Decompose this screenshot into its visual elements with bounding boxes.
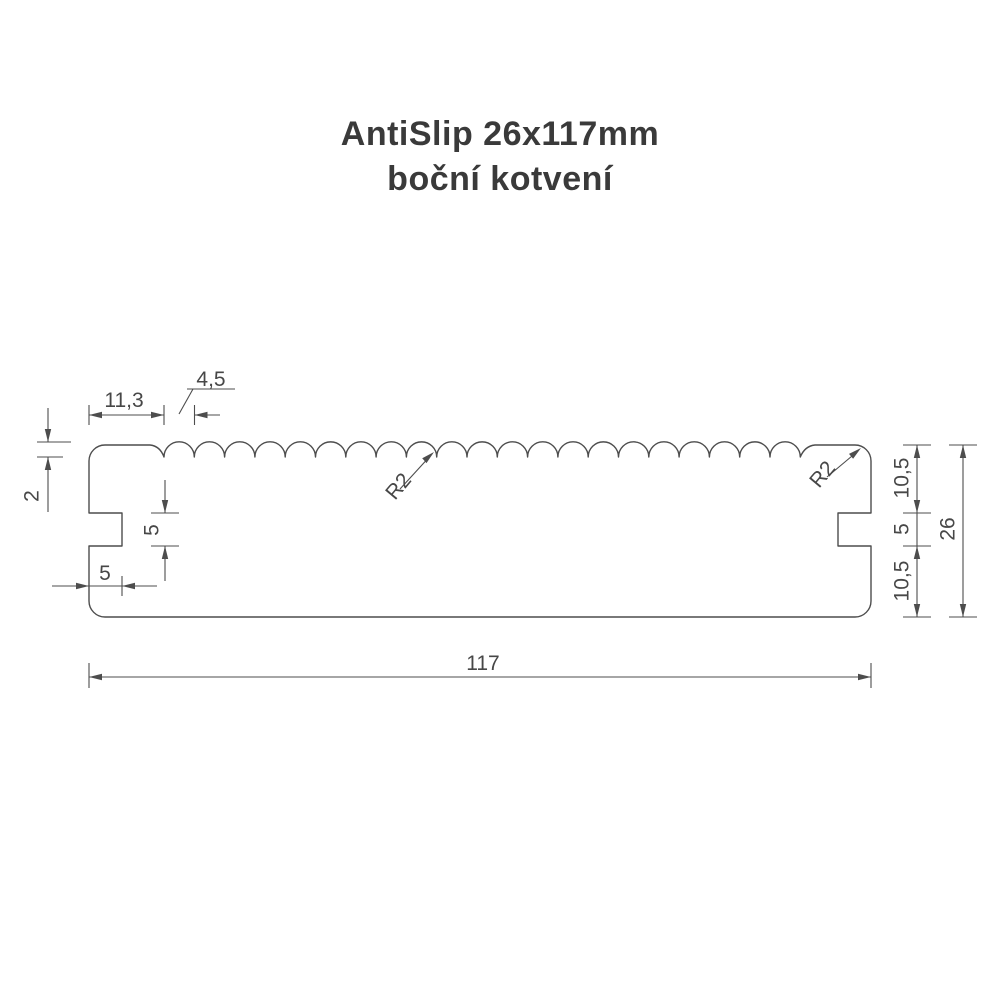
dim-label: 10,5 xyxy=(890,561,913,602)
dim-groove-depth: 2 xyxy=(20,408,71,512)
label-groove-radius: R2 xyxy=(381,452,434,504)
dim-label: 5 xyxy=(140,524,163,536)
arrowhead xyxy=(162,546,168,559)
dim-label: 10,5 xyxy=(890,458,913,499)
dim-right-notch-height: 5 xyxy=(890,513,931,546)
radius-label: R2 xyxy=(381,469,416,504)
dim-left-notch-depth: 5 xyxy=(52,562,157,596)
dim-label: 26 xyxy=(936,517,959,540)
dim-label: 5 xyxy=(890,523,913,535)
arrowhead xyxy=(89,412,102,418)
arrowhead xyxy=(89,674,102,680)
dim-total-width: 117 xyxy=(89,652,871,688)
dim-right-side-upper: 10,5 xyxy=(890,445,931,513)
dim-left-notch-height: 5 xyxy=(140,480,179,581)
arrowhead xyxy=(914,500,920,513)
label-corner-radius: R2 xyxy=(805,448,861,492)
arrowhead xyxy=(45,457,51,470)
dim-label: 5 xyxy=(99,562,111,585)
dim-total-height: 26 xyxy=(936,445,977,617)
dim-groove-start-offset: 11,3 xyxy=(89,389,164,425)
arrowhead xyxy=(76,583,89,589)
dim-label: 11,3 xyxy=(104,389,143,412)
arrowhead xyxy=(914,445,920,458)
arrowhead xyxy=(858,674,871,680)
arrowhead xyxy=(914,604,920,617)
arrowhead xyxy=(195,412,208,418)
arrowhead xyxy=(960,604,966,617)
arrowhead xyxy=(122,583,135,589)
dim-groove-pitch: 4,5 xyxy=(179,368,235,425)
radius-label: R2 xyxy=(805,457,840,492)
arrowhead xyxy=(151,412,164,418)
arrowhead xyxy=(422,452,434,463)
arrowhead xyxy=(162,500,168,513)
arrowhead xyxy=(45,429,51,442)
arrowhead xyxy=(914,546,920,559)
dim-label: 2 xyxy=(20,490,43,502)
board-profile-outline xyxy=(89,442,871,617)
dim-label: 117 xyxy=(466,652,499,675)
profile-drawing: 11,3 4,5 2 5 5 xyxy=(0,0,1000,1000)
arrowhead xyxy=(960,445,966,458)
dim-label: 4,5 xyxy=(196,368,225,391)
dim-right-side-lower: 10,5 xyxy=(890,546,931,617)
